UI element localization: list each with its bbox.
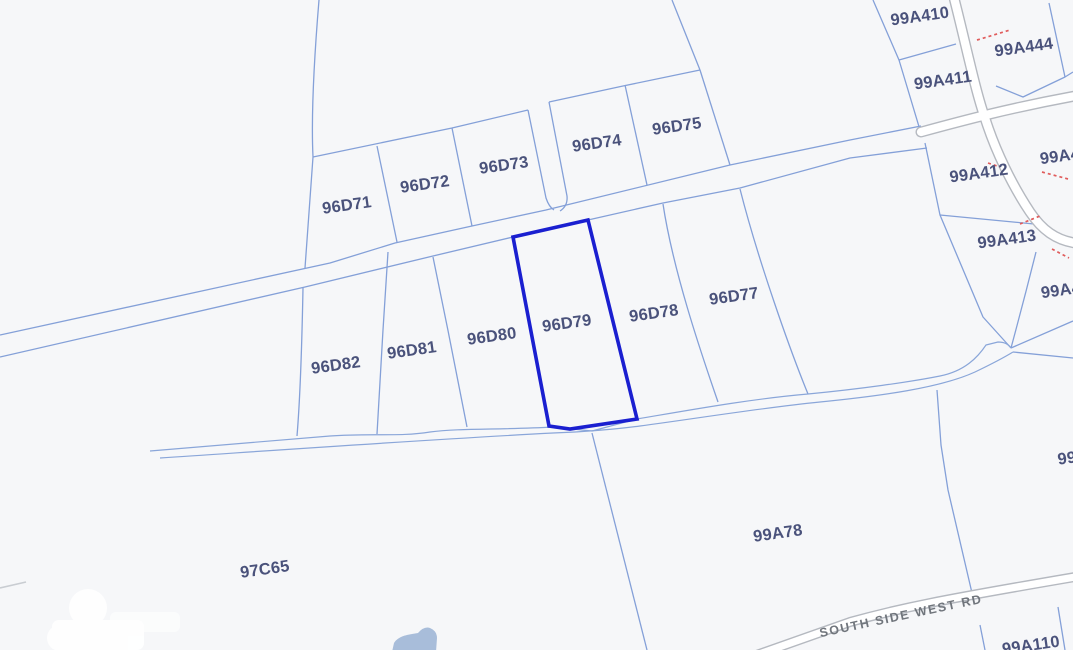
map-linework	[0, 0, 1073, 650]
parcel-label-99-18: 99	[1056, 448, 1073, 469]
parcel-map-canvas[interactable]: 96D7196D7296D7396D7496D7596D8296D8196D80…	[0, 0, 1073, 650]
stream-line	[150, 342, 1013, 458]
parcel-boundaries	[0, 0, 1073, 650]
road-fragment-line	[0, 582, 26, 588]
watermark-logo	[47, 589, 180, 650]
pond-water	[392, 628, 437, 650]
